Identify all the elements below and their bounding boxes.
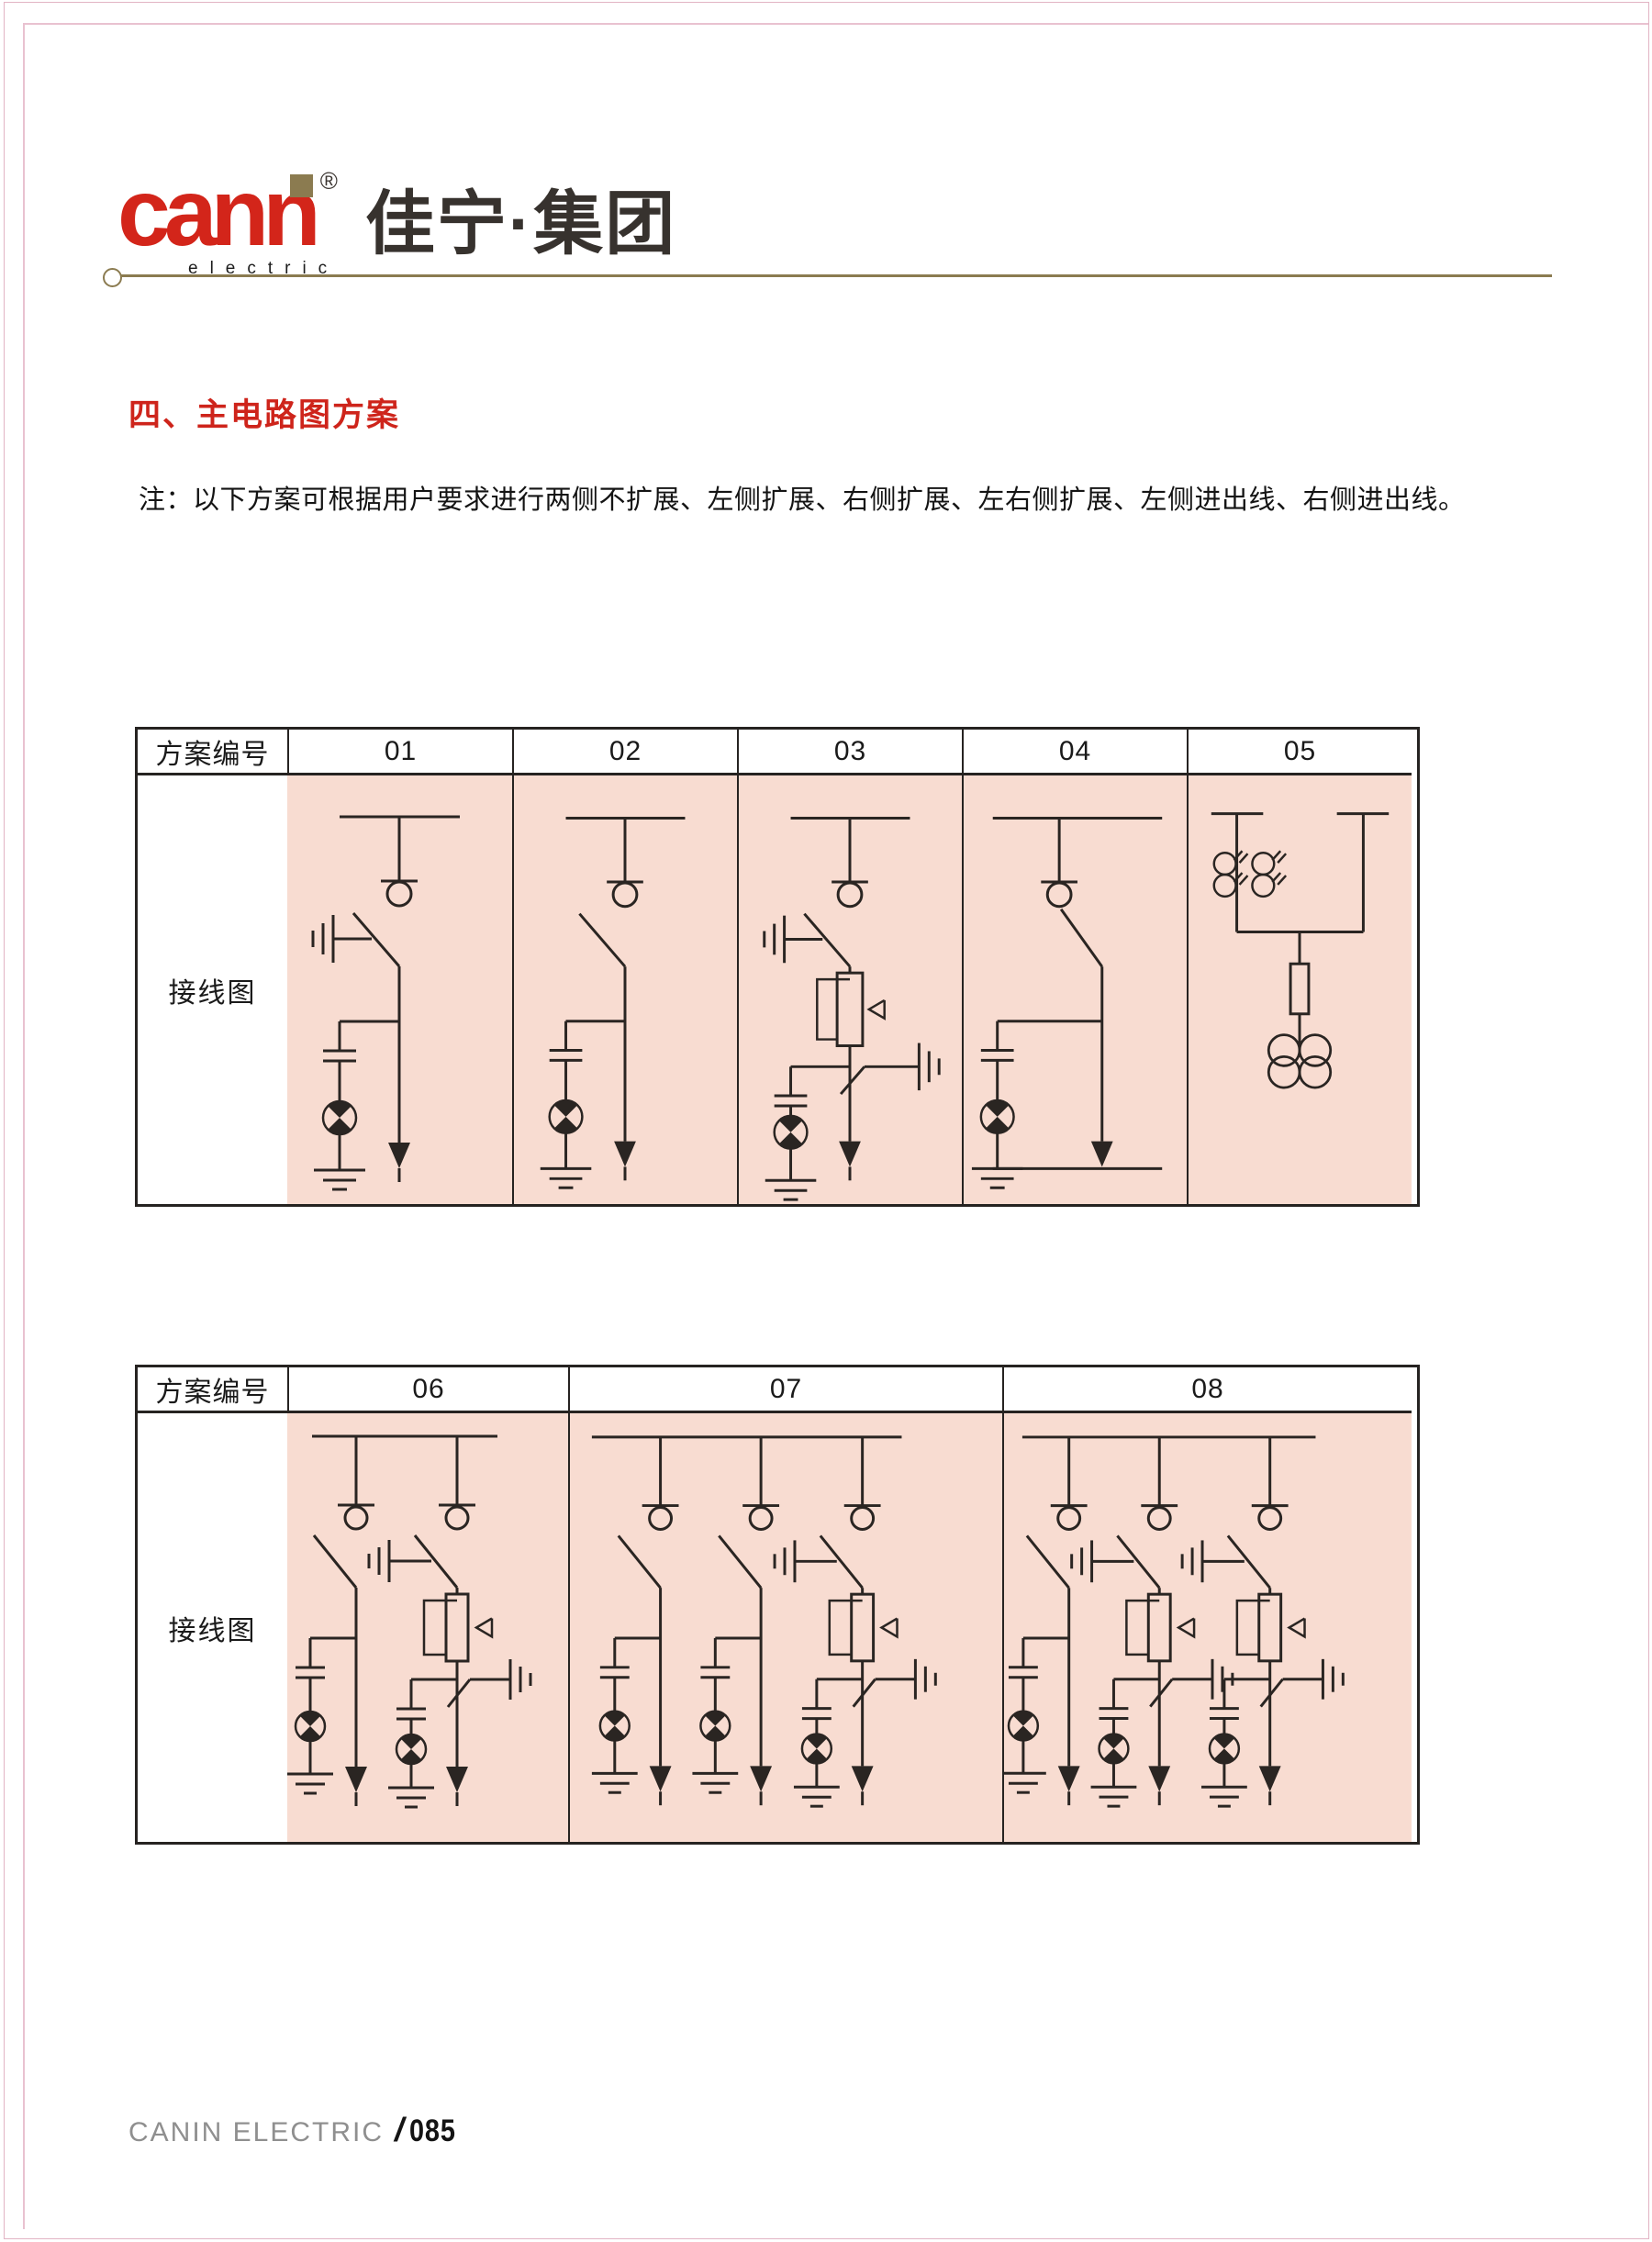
scheme-col-06: 06 [287, 1367, 568, 1413]
circuit-diagram-06 [287, 1413, 568, 1842]
scheme-col-08: 08 [1002, 1367, 1412, 1413]
diagram-cell-08 [1002, 1413, 1412, 1842]
section-title: 四、主电路图方案 [128, 389, 400, 436]
registered-trademark-icon: ® [320, 167, 338, 195]
brand-name: 佳宁·集团 [365, 167, 676, 268]
scheme-col-05: 05 [1187, 730, 1412, 775]
scheme-number-header: 方案编号 [138, 730, 287, 775]
circuit-diagram-04 [964, 775, 1187, 1204]
diagram-cell-01 [287, 775, 512, 1204]
logo-gold-square [290, 174, 313, 197]
scheme-col-01: 01 [287, 730, 512, 775]
scheme-col-07: 07 [568, 1367, 1002, 1413]
header-rule-circle [103, 268, 122, 287]
circuit-diagram-03 [739, 775, 962, 1204]
scheme-table-2: 方案编号 06 07 08 接线图 [135, 1365, 1420, 1845]
circuit-diagram-05 [1189, 775, 1412, 1204]
diagram-cell-02 [512, 775, 737, 1204]
circuit-diagram-02 [514, 775, 737, 1204]
footer-separator: / [395, 2111, 404, 2149]
diagram-cell-06 [287, 1413, 568, 1842]
scheme-col-03: 03 [737, 730, 962, 775]
circuit-diagram-07 [570, 1413, 1002, 1842]
wiring-diagram-row-label: 接线图 [138, 775, 287, 1204]
wiring-diagram-row-label-2: 接线图 [138, 1413, 287, 1842]
footer-page-number: 085 [409, 2114, 456, 2149]
scheme-col-02: 02 [512, 730, 737, 775]
scheme-col-04: 04 [962, 730, 1187, 775]
circuit-diagram-01 [287, 775, 512, 1204]
diagram-cell-05 [1187, 775, 1412, 1204]
page-border-inner-left [23, 23, 25, 2229]
catalog-page: { "header": { "logo_text": "cann", "logo… [0, 0, 1652, 2242]
page-footer: CANIN ELECTRIC / 085 [128, 2111, 464, 2149]
company-logo: cann ® 佳宁·集团 [117, 171, 676, 272]
circuit-diagram-08 [1004, 1413, 1412, 1842]
diagram-cell-03 [737, 775, 962, 1204]
scheme-table-1: 方案编号 01 02 03 04 05 接线图 [135, 727, 1420, 1207]
scheme-number-header-2: 方案编号 [138, 1367, 287, 1413]
footer-company: CANIN ELECTRIC [128, 2117, 384, 2148]
diagram-cell-07 [568, 1413, 1002, 1842]
logo-wordmark: cann [117, 171, 315, 255]
diagram-cell-04 [962, 775, 1187, 1204]
header-rule-line [121, 274, 1552, 277]
page-border-inner-top [23, 23, 1648, 25]
note-text: 注：以下方案可根据用户要求进行两侧不扩展、左侧扩展、右侧扩展、左右侧扩展、左侧进… [139, 478, 1466, 517]
